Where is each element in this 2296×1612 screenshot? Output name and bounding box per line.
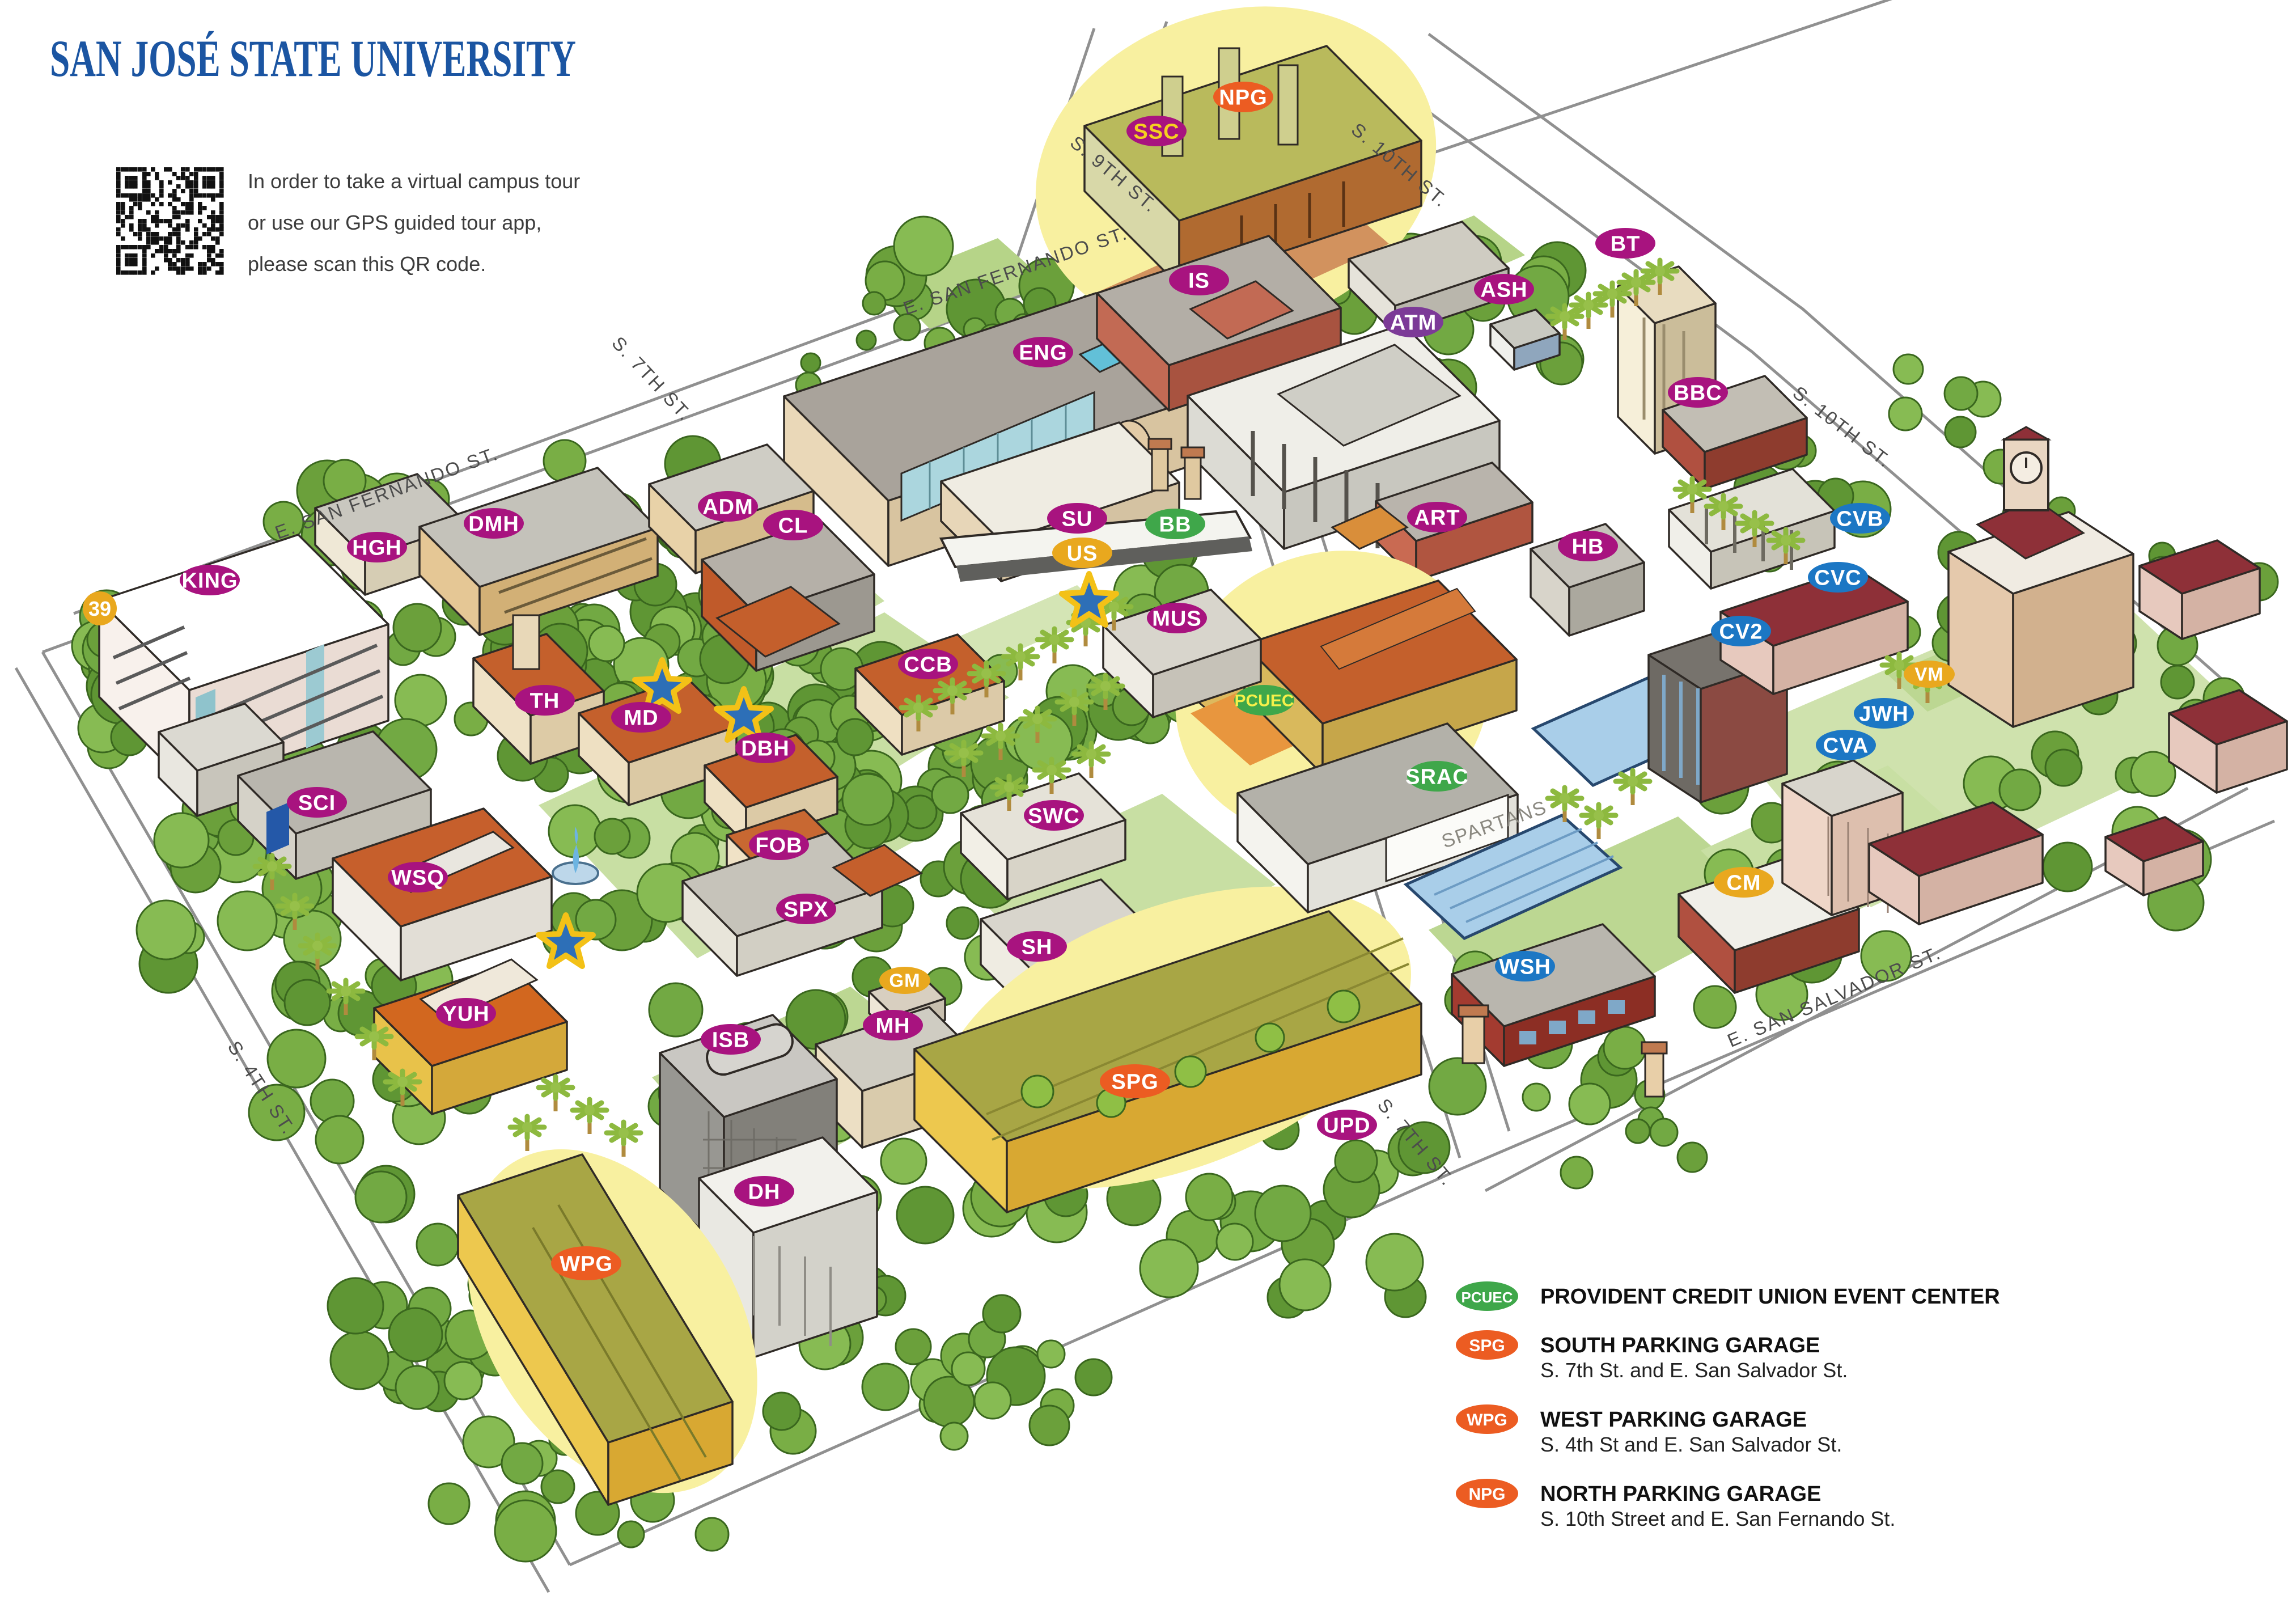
svg-text:In order to take a virtual cam: In order to take a virtual campus tour bbox=[248, 170, 580, 193]
svg-text:BT: BT bbox=[1611, 232, 1641, 256]
svg-text:IS: IS bbox=[1188, 269, 1210, 293]
svg-text:SCI: SCI bbox=[298, 791, 336, 815]
svg-text:SAN JOSÉ STATE UNIVERSITY: SAN JOSÉ STATE UNIVERSITY bbox=[50, 29, 576, 87]
svg-text:ENG: ENG bbox=[1019, 341, 1067, 365]
svg-text:BB: BB bbox=[1159, 513, 1192, 536]
svg-text:SPX: SPX bbox=[783, 898, 828, 921]
svg-text:US: US bbox=[1067, 541, 1098, 565]
svg-text:or use our GPS guided tour app: or use our GPS guided tour app, bbox=[248, 211, 541, 234]
svg-text:S. 10th Street and E. San Fern: S. 10th Street and E. San Fernando St. bbox=[1540, 1507, 1895, 1530]
svg-text:SSC: SSC bbox=[1133, 120, 1179, 143]
svg-text:FOB: FOB bbox=[755, 833, 802, 857]
svg-text:HB: HB bbox=[1572, 535, 1604, 559]
svg-text:VM: VM bbox=[1914, 664, 1944, 685]
svg-text:SOUTH PARKING GARAGE: SOUTH PARKING GARAGE bbox=[1540, 1334, 1820, 1357]
svg-text:KING: KING bbox=[182, 569, 238, 593]
svg-text:UPD: UPD bbox=[1323, 1114, 1370, 1137]
svg-text:PROVIDENT CREDIT UNION EVENT C: PROVIDENT CREDIT UNION EVENT CENTER bbox=[1540, 1285, 2000, 1309]
svg-text:WSH: WSH bbox=[1499, 955, 1551, 979]
svg-text:DMH: DMH bbox=[468, 512, 519, 536]
svg-text:DH: DH bbox=[748, 1180, 781, 1204]
svg-text:CVB: CVB bbox=[1836, 507, 1883, 531]
svg-text:CV2: CV2 bbox=[1719, 620, 1763, 644]
svg-text:YUH: YUH bbox=[442, 1002, 489, 1026]
svg-text:HGH: HGH bbox=[352, 536, 401, 560]
svg-text:DBH: DBH bbox=[741, 737, 789, 760]
svg-text:CVC: CVC bbox=[1814, 566, 1861, 590]
svg-text:TH: TH bbox=[530, 689, 560, 713]
svg-text:MH: MH bbox=[875, 1014, 910, 1038]
svg-text:MUS: MUS bbox=[1152, 607, 1201, 631]
svg-text:PCUEC: PCUEC bbox=[1461, 1289, 1513, 1306]
svg-text:SPG: SPG bbox=[1469, 1336, 1505, 1355]
svg-text:NPG: NPG bbox=[1468, 1485, 1505, 1504]
svg-text:SU: SU bbox=[1062, 507, 1093, 531]
svg-text:ATM: ATM bbox=[1390, 311, 1437, 335]
svg-text:SH: SH bbox=[1022, 935, 1053, 959]
svg-text:39: 39 bbox=[88, 597, 111, 620]
svg-text:WEST PARKING GARAGE: WEST PARKING GARAGE bbox=[1540, 1408, 1807, 1432]
svg-text:GM: GM bbox=[889, 970, 920, 991]
svg-text:JWH: JWH bbox=[1859, 702, 1908, 726]
svg-text:WPG: WPG bbox=[560, 1252, 613, 1276]
svg-text:CL: CL bbox=[778, 514, 808, 538]
svg-text:NORTH PARKING GARAGE: NORTH PARKING GARAGE bbox=[1540, 1482, 1821, 1506]
svg-text:ISB: ISB bbox=[712, 1028, 749, 1052]
svg-text:S. 7th St. and E. San Salvador: S. 7th St. and E. San Salvador St. bbox=[1540, 1359, 1848, 1382]
svg-text:CCB: CCB bbox=[904, 653, 952, 676]
svg-text:ASH: ASH bbox=[1480, 278, 1527, 302]
svg-text:WSQ: WSQ bbox=[391, 866, 444, 890]
svg-text:ADM: ADM bbox=[702, 495, 753, 519]
svg-text:CVA: CVA bbox=[1823, 734, 1869, 758]
svg-text:ART: ART bbox=[1414, 506, 1460, 530]
svg-text:PCUEC: PCUEC bbox=[1234, 692, 1294, 710]
svg-text:SRAC: SRAC bbox=[1405, 765, 1469, 789]
svg-text:MD: MD bbox=[624, 706, 658, 730]
svg-text:S. 4th St and E. San Salvador: S. 4th St and E. San Salvador St. bbox=[1540, 1433, 1842, 1456]
svg-text:CM: CM bbox=[1726, 871, 1761, 895]
svg-text:BBC: BBC bbox=[1674, 381, 1722, 405]
svg-text:WPG: WPG bbox=[1467, 1411, 1507, 1429]
svg-text:SWC: SWC bbox=[1028, 804, 1080, 828]
svg-text:SPG: SPG bbox=[1111, 1070, 1158, 1094]
svg-text:NPG: NPG bbox=[1219, 86, 1267, 109]
svg-text:please scan this QR code.: please scan this QR code. bbox=[248, 252, 486, 276]
